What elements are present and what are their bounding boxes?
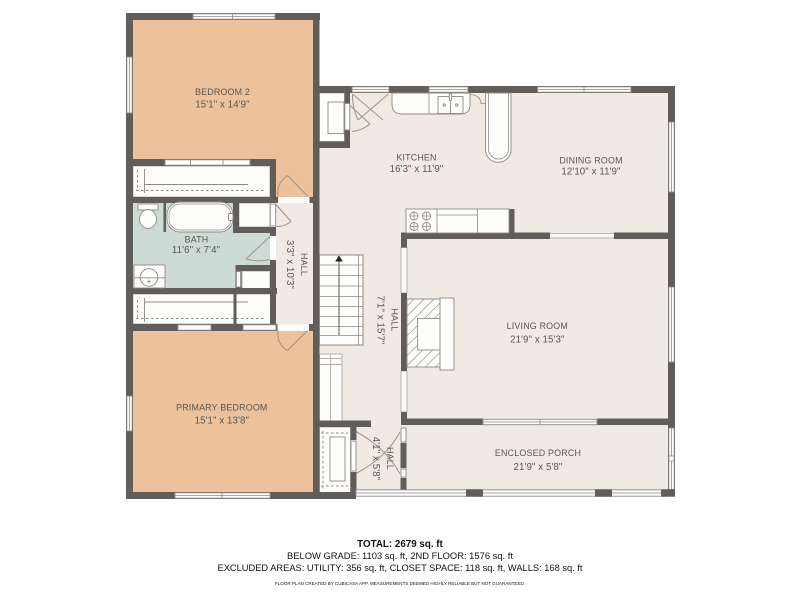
svg-text:HALL: HALL xyxy=(390,308,400,331)
svg-text:PRIMARY BEDROOM: PRIMARY BEDROOM xyxy=(176,403,267,413)
svg-text:7'1" x 15'7": 7'1" x 15'7" xyxy=(375,296,386,345)
svg-text:4'1" x 5'8": 4'1" x 5'8" xyxy=(370,437,381,481)
svg-text:11'6" x 7'4": 11'6" x 7'4" xyxy=(172,245,221,256)
svg-text:15'1" x 13'8": 15'1" x 13'8" xyxy=(195,416,250,427)
svg-text:3'3" x 10'3": 3'3" x 10'3" xyxy=(284,240,295,289)
svg-text:ENCLOSED PORCH: ENCLOSED PORCH xyxy=(495,448,581,458)
svg-text:EXCLUDED AREAS: UTILITY: 356 s: EXCLUDED AREAS: UTILITY: 356 sq. ft, CLO… xyxy=(218,563,583,573)
svg-text:BATH: BATH xyxy=(185,235,209,245)
svg-text:TOTAL: 2679 sq. ft: TOTAL: 2679 sq. ft xyxy=(357,539,443,550)
svg-text:BEDROOM 2: BEDROOM 2 xyxy=(195,87,250,97)
svg-text:DINING ROOM: DINING ROOM xyxy=(559,155,622,165)
svg-text:12'10" x 11'9": 12'10" x 11'9" xyxy=(561,167,621,178)
svg-text:15'1" x 14'9": 15'1" x 14'9" xyxy=(195,100,250,111)
svg-text:LIVING ROOM: LIVING ROOM xyxy=(507,321,568,331)
svg-text:HALL: HALL xyxy=(385,447,395,470)
svg-text:BELOW GRADE: 1103 sq. ft, 2ND: BELOW GRADE: 1103 sq. ft, 2ND FLOOR: 157… xyxy=(287,550,513,561)
svg-text:21'9" x 15'3": 21'9" x 15'3" xyxy=(510,334,565,345)
svg-text:21'9" x 5'8": 21'9" x 5'8" xyxy=(514,462,563,473)
svg-text:HALL: HALL xyxy=(299,253,309,276)
svg-text:16'3" x 11'9": 16'3" x 11'9" xyxy=(390,164,444,175)
svg-text:FLOOR PLAN CREATED BY CUBICASA: FLOOR PLAN CREATED BY CUBICASA APP. MEAS… xyxy=(275,581,525,586)
svg-text:KITCHEN: KITCHEN xyxy=(396,153,436,163)
